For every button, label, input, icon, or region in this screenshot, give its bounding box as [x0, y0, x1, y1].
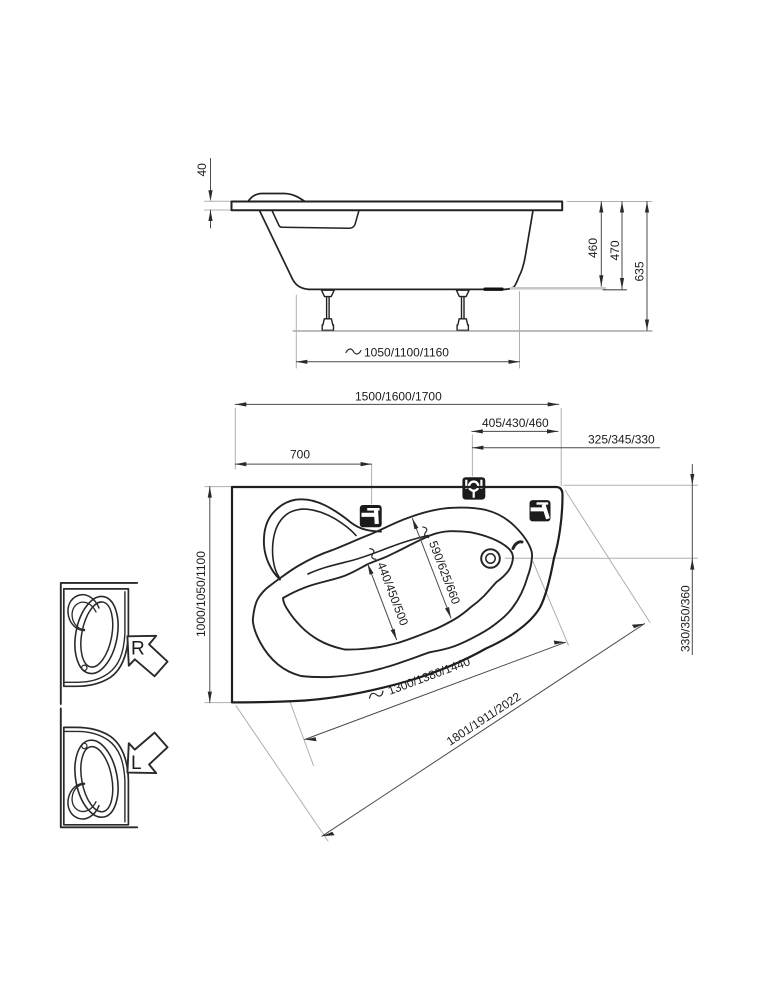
svg-text:1050/1100/1160: 1050/1100/1160	[364, 346, 449, 360]
svg-text:470: 470	[608, 240, 622, 260]
svg-text:1500/1600/1700: 1500/1600/1700	[355, 389, 442, 403]
svg-text:1000/1050/1100: 1000/1050/1100	[194, 551, 208, 637]
svg-text:700: 700	[290, 448, 310, 462]
svg-text:R: R	[131, 639, 145, 660]
svg-text:330/350/360: 330/350/360	[679, 585, 693, 652]
svg-text:L: L	[131, 753, 142, 774]
svg-text:440/450/500: 440/450/500	[374, 560, 411, 628]
svg-text:460: 460	[586, 238, 600, 258]
svg-text:405/430/460: 405/430/460	[482, 416, 549, 430]
svg-text:1801/1911/2022: 1801/1911/2022	[444, 689, 524, 748]
svg-text:325/345/330: 325/345/330	[588, 433, 655, 447]
svg-text:1300/1380/1440: 1300/1380/1440	[386, 654, 472, 698]
svg-text:590/625/660: 590/625/660	[426, 539, 463, 607]
svg-text:40: 40	[195, 163, 209, 177]
svg-text:635: 635	[633, 261, 647, 281]
